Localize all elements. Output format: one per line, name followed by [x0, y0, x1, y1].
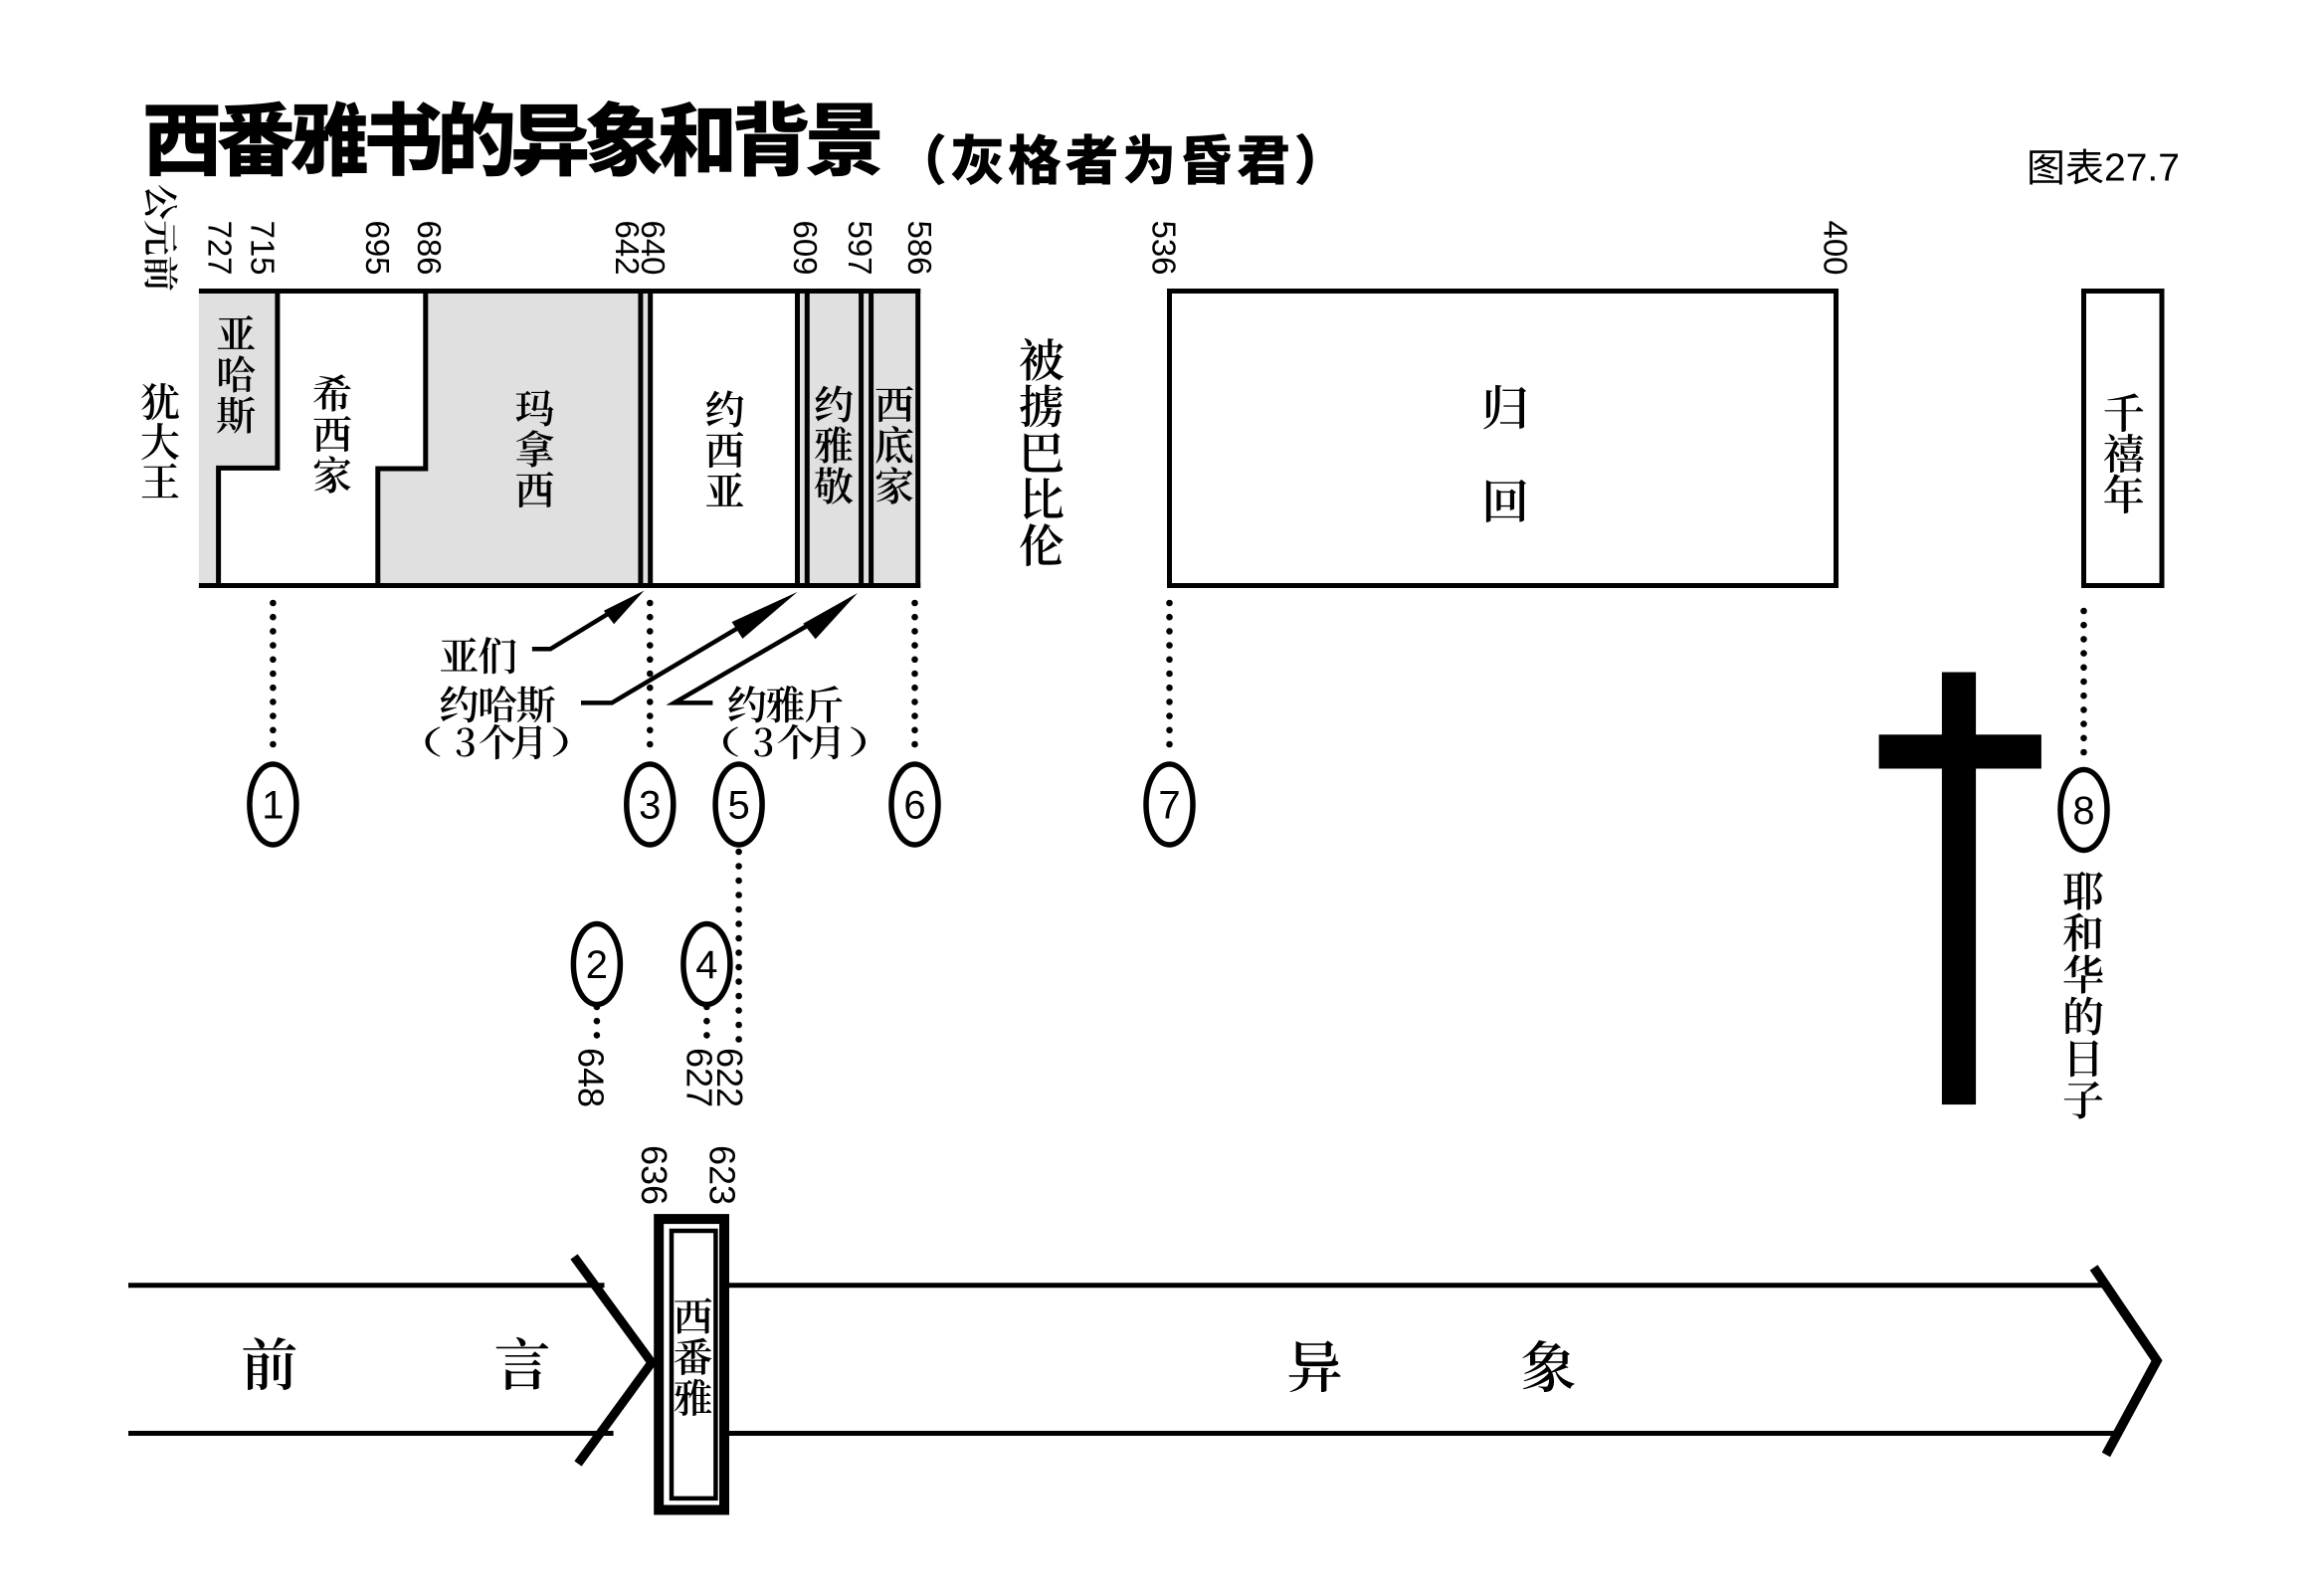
svg-text:623: 623	[702, 1145, 743, 1205]
svg-text:1: 1	[262, 784, 284, 828]
svg-text:5: 5	[727, 784, 749, 828]
svg-text:640: 640	[635, 220, 672, 275]
svg-text:3: 3	[639, 784, 661, 828]
svg-text:648: 648	[571, 1048, 612, 1107]
svg-text:536: 536	[1146, 220, 1183, 275]
svg-text:586: 586	[901, 220, 938, 275]
svg-text:7: 7	[1158, 784, 1180, 828]
svg-text:622: 622	[709, 1048, 750, 1107]
svg-text:715: 715	[245, 220, 282, 275]
svg-text:4: 4	[695, 943, 717, 987]
svg-text:609: 609	[787, 220, 824, 275]
svg-text:686: 686	[411, 220, 448, 275]
svg-text:8: 8	[2072, 789, 2094, 833]
svg-text:695: 695	[359, 220, 396, 275]
svg-text:27.7: 27.7	[2104, 147, 2180, 190]
svg-text:597: 597	[842, 220, 878, 275]
svg-text:400: 400	[1818, 220, 1854, 275]
svg-text:636: 636	[634, 1145, 675, 1205]
svg-text:6: 6	[903, 784, 925, 828]
svg-text:2: 2	[586, 943, 608, 987]
svg-text:727: 727	[202, 220, 239, 275]
